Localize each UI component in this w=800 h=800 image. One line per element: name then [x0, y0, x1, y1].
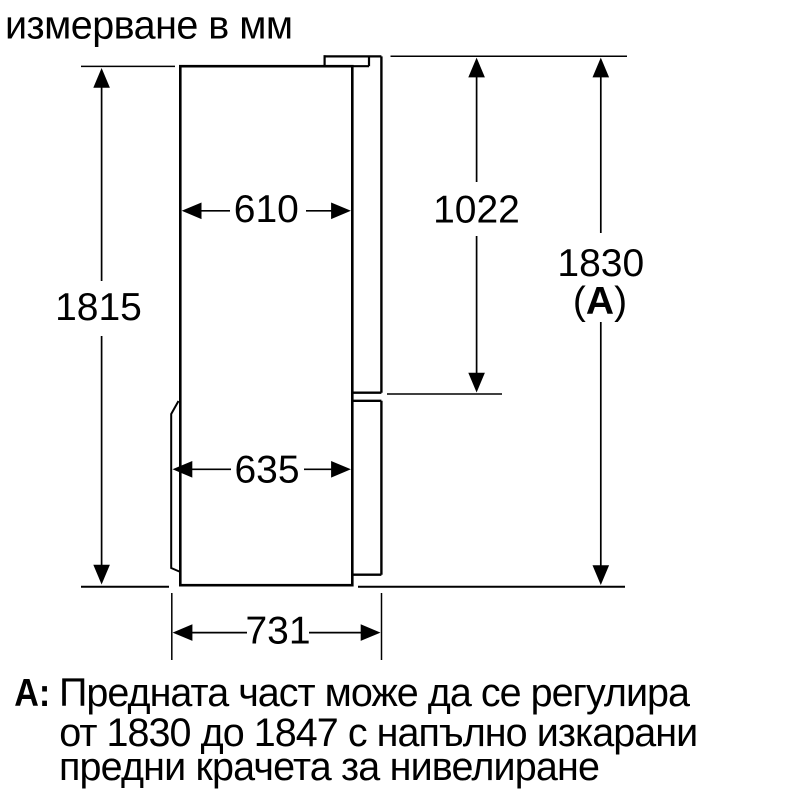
- svg-text:635: 635: [234, 449, 299, 492]
- svg-text:Предната част може да се регул: Предната част може да се регулира: [59, 671, 690, 715]
- svg-text:1022: 1022: [433, 189, 520, 232]
- svg-text:1815: 1815: [55, 286, 142, 329]
- svg-text:А:: А:: [14, 672, 50, 715]
- svg-text:1830: 1830: [557, 242, 644, 285]
- svg-text:предни крачета за нивелиране: предни крачета за нивелиране: [59, 745, 600, 789]
- svg-text:731: 731: [245, 610, 310, 653]
- svg-text:(А): (А): [573, 280, 627, 323]
- svg-text:измерване в мм: измерване в мм: [5, 4, 293, 48]
- svg-text:610: 610: [234, 188, 299, 231]
